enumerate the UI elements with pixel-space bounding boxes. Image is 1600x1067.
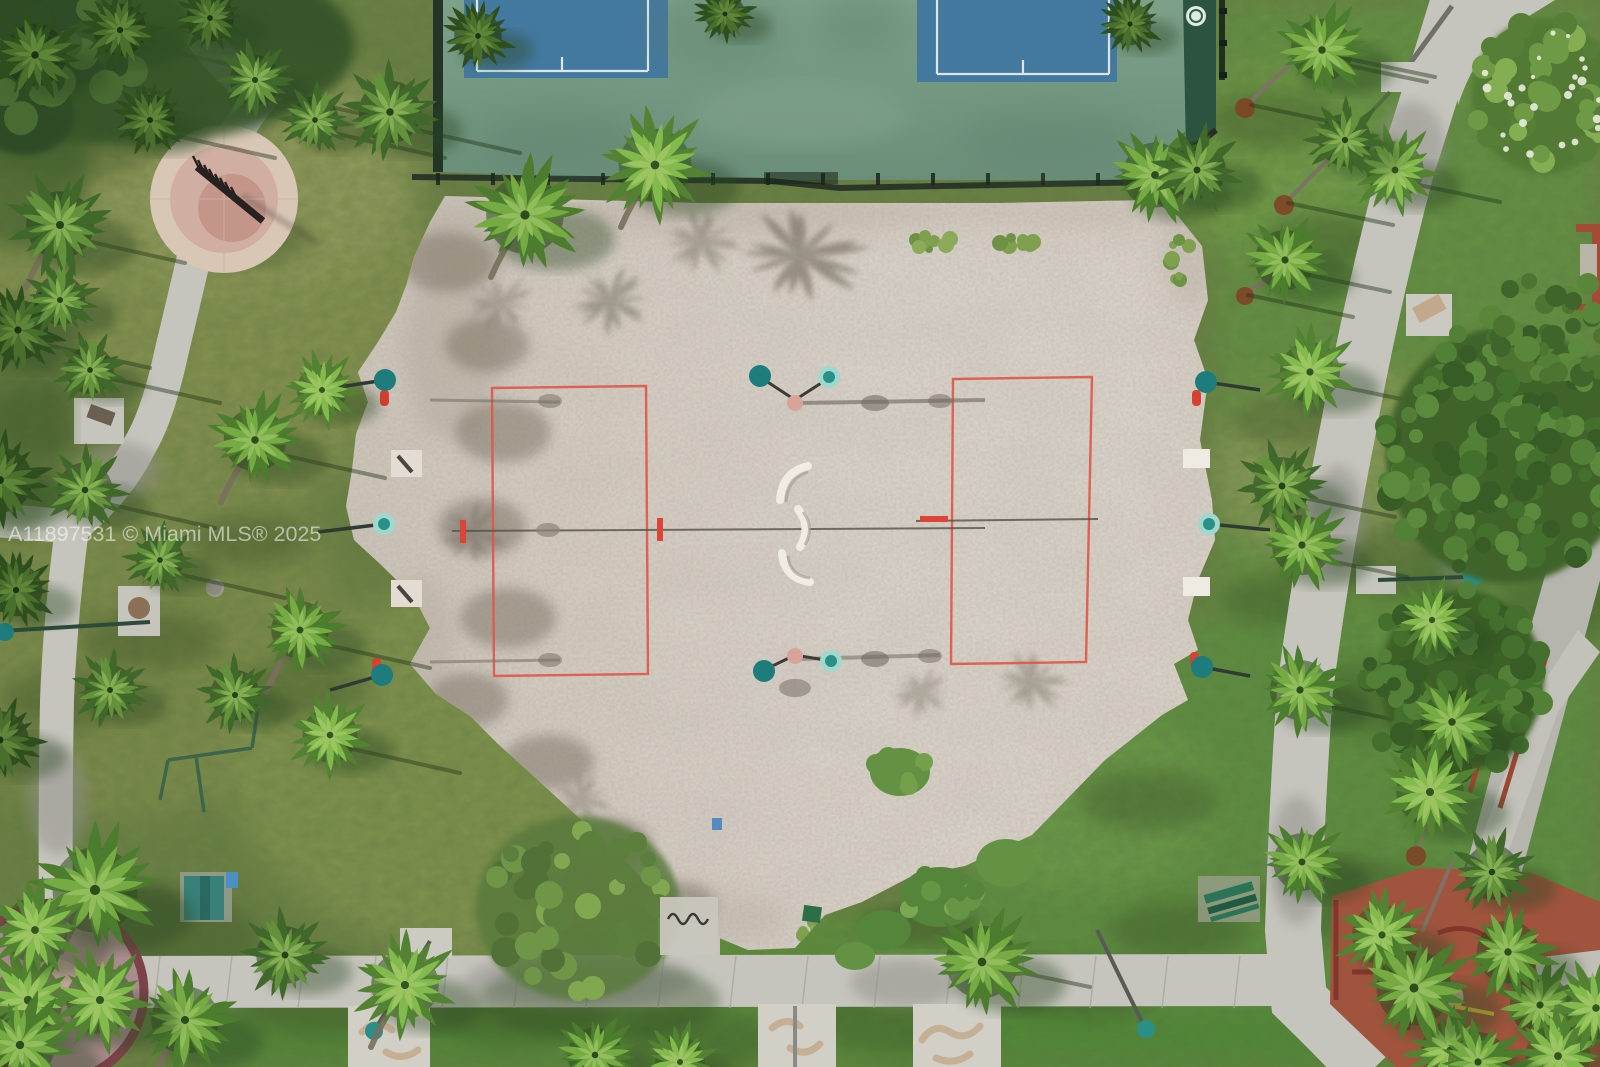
svg-text:A11897531 © Miami MLS® 2025: A11897531 © Miami MLS® 2025 xyxy=(8,522,321,546)
